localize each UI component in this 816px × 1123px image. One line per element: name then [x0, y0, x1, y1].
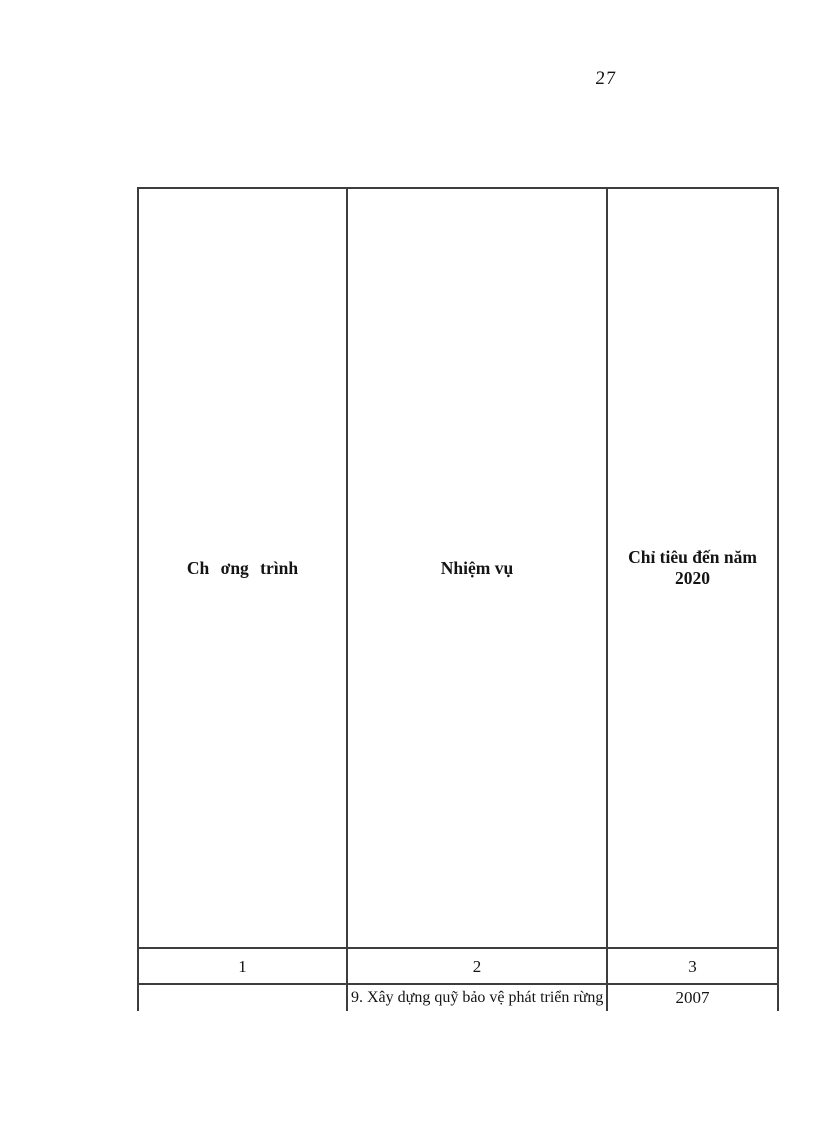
page-number: 27 [585, 68, 627, 90]
document-page: 27 Ch ơng trình Nhiệm vụ Chỉ tiêu đến nă… [0, 0, 816, 1123]
header-cell-target: Chỉ tiêu đến năm 2020 [608, 189, 777, 947]
programs-table: Ch ơng trình Nhiệm vụ Chỉ tiêu đến năm 2… [137, 187, 779, 1011]
cell-task: 9. Xây dựng quỹ bảo vệ phát triển rừng [348, 983, 608, 1011]
header-cell-program: Ch ơng trình [139, 189, 348, 947]
cell-program [139, 983, 348, 1011]
cell-target: 2007 [608, 983, 777, 1011]
column-number-1: 1 [139, 947, 348, 983]
column-number-2: 2 [348, 947, 608, 983]
column-number-3: 3 [608, 947, 777, 983]
header-cell-task: Nhiệm vụ [348, 189, 608, 947]
